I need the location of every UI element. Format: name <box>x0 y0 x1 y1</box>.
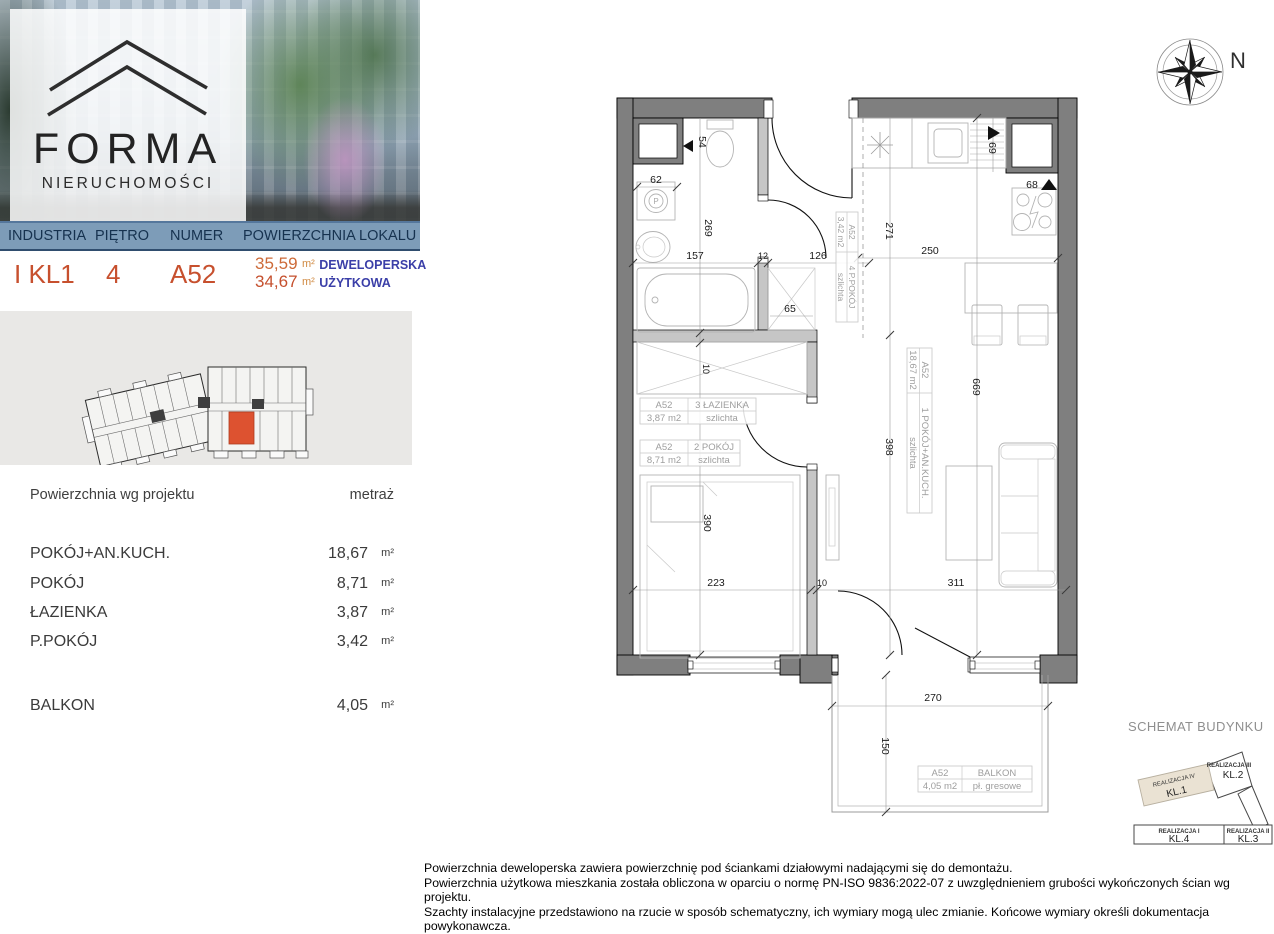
area-developer-line: 35,59 m² DEWELOPERSKA <box>255 254 426 274</box>
coffee-table <box>946 466 992 560</box>
living-room-label: A52 1 POKÓJ+AN.KUCH. 18,67 m2 szlichta <box>907 348 932 513</box>
label-area: 18,67 m2 <box>907 350 918 390</box>
table-row-balcony: BALKON 4,05 m² <box>30 697 394 715</box>
balcony-label: A52 BALKON 4,05 m2 pł. gresowe <box>918 766 1032 792</box>
pillow <box>651 486 703 522</box>
marker-triangle <box>988 126 1000 140</box>
investment-value: I KL1 <box>14 259 75 290</box>
room-area: 8,71 <box>308 575 368 593</box>
label-area: 8,71 m2 <box>647 455 681 466</box>
marker-triangle <box>683 140 693 152</box>
building-schematic: REALIZACJA IV KL.1 REALIZACJA III KL.2 R… <box>1128 738 1274 846</box>
disclaimer-line-1: Powierzchnia deweloperska zawiera powier… <box>424 861 1272 876</box>
roof-logo-icon <box>10 9 246 124</box>
room-area-table: Powierzchnia wg projektu metraż POKÓJ+AN… <box>0 465 412 765</box>
label-area: 4,05 m2 <box>923 781 957 792</box>
bathroom-label: A52 3 ŁAZIENKA 3,87 m2 szlichta <box>640 398 756 424</box>
dim-157: 157 <box>686 250 704 262</box>
label-name: 2 POKÓJ <box>694 442 734 453</box>
table-row: ŁAZIENKA 3,87 m² <box>30 604 394 622</box>
room-name: POKÓJ <box>30 575 84 593</box>
label-floor: szlichta <box>836 273 846 302</box>
schemat-block-kl1-highlighted <box>1138 764 1214 806</box>
installation-shaft <box>768 268 815 330</box>
tv-unit <box>826 475 839 560</box>
dim-10-wardrobe: 10 <box>701 364 711 374</box>
unit-info-values: I KL1 4 A52 35,59 m² DEWELOPERSKA 34,67 … <box>0 251 420 311</box>
dim-390: 390 <box>701 514 713 532</box>
washer-symbol: P <box>653 197 658 206</box>
dim-69: 69 <box>986 142 998 154</box>
label-floor: pł. gresowe <box>973 781 1022 792</box>
living-window <box>970 657 1040 673</box>
area-table-header-value: metraż <box>350 487 394 503</box>
label-code: A52 <box>919 362 930 379</box>
dim-669: 669 <box>970 378 982 396</box>
compass-rose-icon: N <box>1140 25 1250 125</box>
bedroom-window <box>688 657 780 673</box>
wardrobe <box>637 342 807 394</box>
unit-number-value: A52 <box>170 259 216 290</box>
header-photo: FORMA NIERUCHOMOŚCI <box>0 0 420 221</box>
column-floor: PIĘTRO <box>95 228 170 244</box>
room-area-unit: m² <box>368 575 394 593</box>
kl-label: KL.4 <box>1169 834 1190 845</box>
label-floor: szlichta <box>706 413 738 424</box>
dim-10-wall: 10 <box>817 578 827 588</box>
column-investment: INDUSTRIA <box>0 228 95 244</box>
toilet-icon <box>707 120 734 167</box>
realization-label: REALIZACJA III <box>1207 763 1252 769</box>
brand-name: FORMA <box>10 125 246 174</box>
room-name: ŁAZIENKA <box>30 604 107 622</box>
dim-311: 311 <box>948 577 965 589</box>
dim-54: 54 <box>696 136 708 148</box>
label-name: 3 ŁAZIENKA <box>695 400 750 411</box>
label-floor: szlichta <box>698 455 730 466</box>
dim-68: 68 <box>1026 179 1038 191</box>
area-developer-value: 35,59 <box>255 254 298 273</box>
area-usable-label: UŻYTKOWA <box>319 276 391 290</box>
label-code: A52 <box>847 224 857 239</box>
washbasin-icon <box>636 232 670 263</box>
disclaimer-line-2: Powierzchnia użytkowa mieszkania została… <box>424 876 1272 905</box>
dim-250: 250 <box>921 245 939 257</box>
doors <box>743 100 974 672</box>
label-name: 1 POKÓJ+AN.KUCH. <box>919 407 930 498</box>
label-area: 3,42 m2 <box>836 217 846 248</box>
chair <box>972 305 1002 345</box>
entrance-door <box>772 118 852 198</box>
table-row: POKÓJ+AN.KUCH. 18,67 m² <box>30 545 394 563</box>
bedroom-label: A52 2 POKÓJ 8,71 m2 szlichta <box>640 440 740 466</box>
dim-269: 269 <box>702 219 714 237</box>
area-usable-value: 34,67 <box>255 272 298 291</box>
table-row: POKÓJ 8,71 m² <box>30 575 394 593</box>
cooktop-icon <box>1012 188 1056 235</box>
label-floor: szlichta <box>907 437 918 469</box>
label-name: 4 P.POKÓJ <box>847 266 857 309</box>
dim-65: 65 <box>784 303 796 315</box>
compass-north-label: N <box>1230 48 1246 73</box>
marker-triangle <box>1041 179 1057 190</box>
stair-core <box>198 397 210 408</box>
label-code: A52 <box>656 442 673 453</box>
area-usable-line: 34,67 m² UŻYTKOWA <box>255 272 391 292</box>
dim-150: 150 <box>879 737 891 755</box>
column-area: POWIERZCHNIA LOKALU <box>243 228 420 244</box>
room-name: POKÓJ+AN.KUCH. <box>30 545 170 563</box>
hall-label: A52 4 P.POKÓJ 3,42 m2 szlichta <box>836 212 858 322</box>
dim-398: 398 <box>883 438 895 456</box>
room-name: P.POKÓJ <box>30 633 97 651</box>
room-area: 18,67 <box>308 545 368 563</box>
floor-overview-map <box>0 311 412 465</box>
room-area: 4,05 <box>308 697 368 715</box>
kl-label: KL.2 <box>1223 770 1244 781</box>
room-area-unit: m² <box>368 633 394 651</box>
bed <box>640 475 800 658</box>
bathtub-icon <box>637 268 755 332</box>
apartment-floor-plan: P <box>600 85 1100 845</box>
label-name: BALKON <box>978 768 1017 779</box>
ceiling-lamp-icon <box>867 132 893 158</box>
dim-12: 12 <box>758 251 768 261</box>
windows <box>688 657 1040 673</box>
area-developer-label: DEWELOPERSKA <box>319 258 426 272</box>
sofa <box>999 443 1057 587</box>
building-left-wing <box>77 368 217 465</box>
dim-271: 271 <box>883 222 895 240</box>
room-area-unit: m² <box>368 545 394 563</box>
dim-270: 270 <box>924 692 942 704</box>
building-right-wing <box>198 367 313 458</box>
column-number: NUMER <box>170 228 243 244</box>
area-usable-unit: m² <box>302 276 315 288</box>
label-code: A52 <box>932 768 949 779</box>
unit-info-header: INDUSTRIA PIĘTRO NUMER POWIERZCHNIA LOKA… <box>0 221 420 251</box>
shaft-right <box>1012 124 1052 167</box>
room-name: BALKON <box>30 697 95 715</box>
highlighted-unit-a52 <box>229 412 254 444</box>
chair <box>1018 305 1048 345</box>
brand-subtitle: NIERUCHOMOŚCI <box>10 175 246 193</box>
floor-value: 4 <box>106 259 120 290</box>
kl-label: KL.3 <box>1238 834 1259 845</box>
floor-overview-panel <box>0 311 412 465</box>
label-code: A52 <box>656 400 673 411</box>
area-table-header: Powierzchnia wg projektu metraż <box>30 487 394 503</box>
room-area: 3,87 <box>308 604 368 622</box>
disclaimer: Powierzchnia deweloperska zawiera powier… <box>424 861 1272 934</box>
table-row: P.POKÓJ 3,42 m² <box>30 633 394 651</box>
building-schematic-title: SCHEMAT BUDYNKU <box>1128 719 1274 734</box>
dim-223: 223 <box>707 577 725 589</box>
balcony-door <box>838 591 902 655</box>
disclaimer-line-3: Szachty instalacyjne przedstawiono na rz… <box>424 905 1272 934</box>
room-area: 3,42 <box>308 633 368 651</box>
dining-table <box>965 263 1057 345</box>
stair-core <box>252 399 264 409</box>
dim-126: 126 <box>809 250 827 262</box>
dim-62: 62 <box>650 174 662 186</box>
area-table-header-name: Powierzchnia wg projektu <box>30 487 194 503</box>
label-area: 3,87 m2 <box>647 413 681 424</box>
shaft-left <box>639 124 677 158</box>
kitchen-sink-icon <box>934 129 962 157</box>
kitchen-counter <box>852 118 1006 168</box>
washing-machine-icon: P <box>637 182 675 220</box>
outer-walls <box>617 98 1077 683</box>
room-area-unit: m² <box>368 604 394 622</box>
schemat-block-arm <box>1238 786 1268 830</box>
logo-box: FORMA NIERUCHOMOŚCI <box>10 9 246 221</box>
area-developer-unit: m² <box>302 258 315 270</box>
room-area-unit: m² <box>368 697 394 715</box>
